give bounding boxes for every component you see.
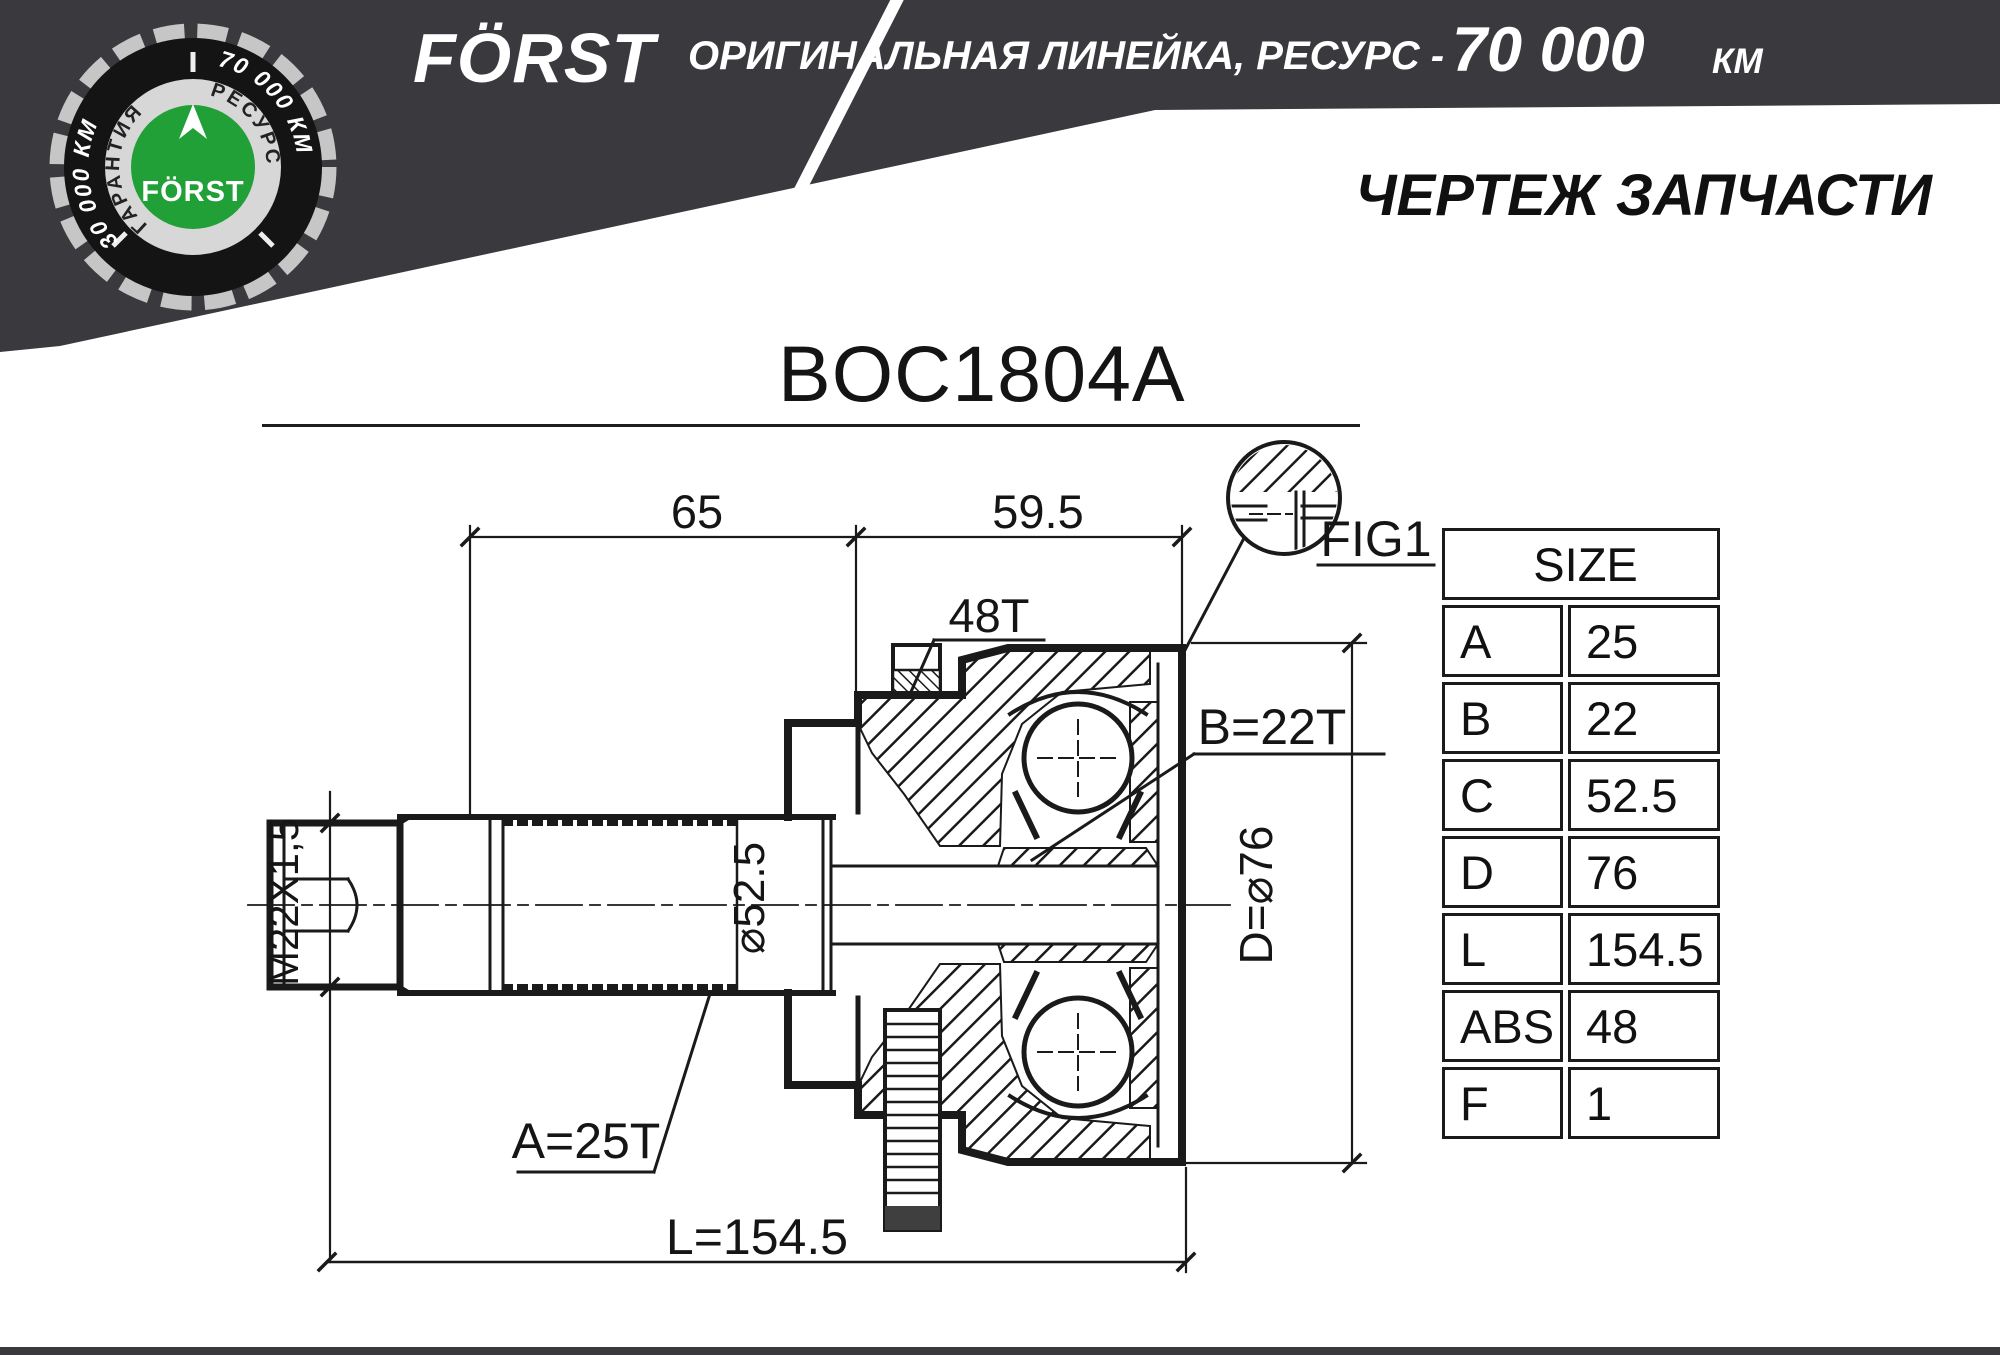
table-row: D 76 — [1442, 836, 1720, 908]
part-number: BOC1804A — [778, 328, 1186, 420]
dimension-lines — [319, 526, 1384, 1272]
table-row: C 52.5 — [1442, 759, 1720, 831]
row-label-c: C — [1442, 759, 1563, 831]
row-value-a: 25 — [1568, 605, 1720, 677]
row-value-c: 52.5 — [1568, 759, 1720, 831]
page-title: ЧЕРТЕЖ ЗАПЧАСТИ — [1355, 162, 1932, 229]
abs-teeth-48t-label: 48T — [949, 589, 1030, 642]
row-label-d: D — [1442, 836, 1563, 908]
size-table-header: SIZE — [1442, 528, 1720, 600]
length-label: L=154.5 — [666, 1209, 848, 1265]
row-label-a: A — [1442, 605, 1563, 677]
table-row: F 1 — [1442, 1067, 1720, 1139]
size-table: SIZE A 25 B 22 C 52.5 D 76 L 154.5 ABS 4… — [1437, 523, 1725, 1144]
table-row: A 25 — [1442, 605, 1720, 677]
dim-59-5-label: 59.5 — [992, 485, 1083, 538]
table-row: ABS 48 — [1442, 990, 1720, 1062]
dia-d-label: D=⌀76 — [1230, 826, 1282, 965]
page: 30 000 КМ 70 000 КМ ГАРАНТИЯ РЕСУРС FÖRS… — [0, 0, 2000, 1355]
row-value-f: 1 — [1568, 1067, 1720, 1139]
dia-c-label: ⌀52.5 — [725, 842, 774, 954]
abs-ring-teeth — [885, 1010, 940, 1230]
row-label-abs: ABS — [1442, 990, 1563, 1062]
abs-ring-block — [893, 645, 940, 695]
brand-badge: 30 000 КМ 70 000 КМ ГАРАНТИЯ РЕСУРС FÖRS… — [57, 31, 329, 303]
header-brand: FÖRST — [413, 18, 655, 98]
dimension-labels: 65 59.5 48T FIG1 B=22T D=⌀76 ⌀52.5 M22X1… — [260, 485, 1432, 1265]
row-value-abs: 48 — [1568, 990, 1720, 1062]
cv-joint-drawing: 65 59.5 48T FIG1 B=22T D=⌀76 ⌀52.5 M22X1… — [248, 440, 1434, 1272]
row-value-b: 22 — [1568, 682, 1720, 754]
thread-label: M22X1,5 — [260, 818, 307, 986]
dimension-ticks — [319, 529, 1360, 1270]
dim-65-label: 65 — [671, 485, 723, 538]
header-tagline: ОРИГИНАЛЬНАЯ ЛИНЕЙКА, РЕСУРС - — [688, 34, 1444, 79]
row-value-l: 154.5 — [1568, 913, 1720, 985]
part-number-rule — [262, 424, 1360, 427]
table-row: L 154.5 — [1442, 913, 1720, 985]
row-label-b: B — [1442, 682, 1563, 754]
table-row: B 22 — [1442, 682, 1720, 754]
badge-brand-text: FÖRST — [141, 175, 244, 208]
header-resource-unit: КМ — [1712, 42, 1763, 82]
fig1-label: FIG1 — [1320, 511, 1431, 567]
header-resource-value: 70 000 — [1452, 14, 1645, 86]
row-label-f: F — [1442, 1067, 1563, 1139]
bottom-strip — [0, 1347, 2000, 1355]
spline-a-label: A=25T — [512, 1113, 661, 1169]
row-label-l: L — [1442, 913, 1563, 985]
spline-b-label: B=22T — [1198, 699, 1347, 755]
row-value-d: 76 — [1568, 836, 1720, 908]
table-header-row: SIZE — [1442, 528, 1720, 600]
